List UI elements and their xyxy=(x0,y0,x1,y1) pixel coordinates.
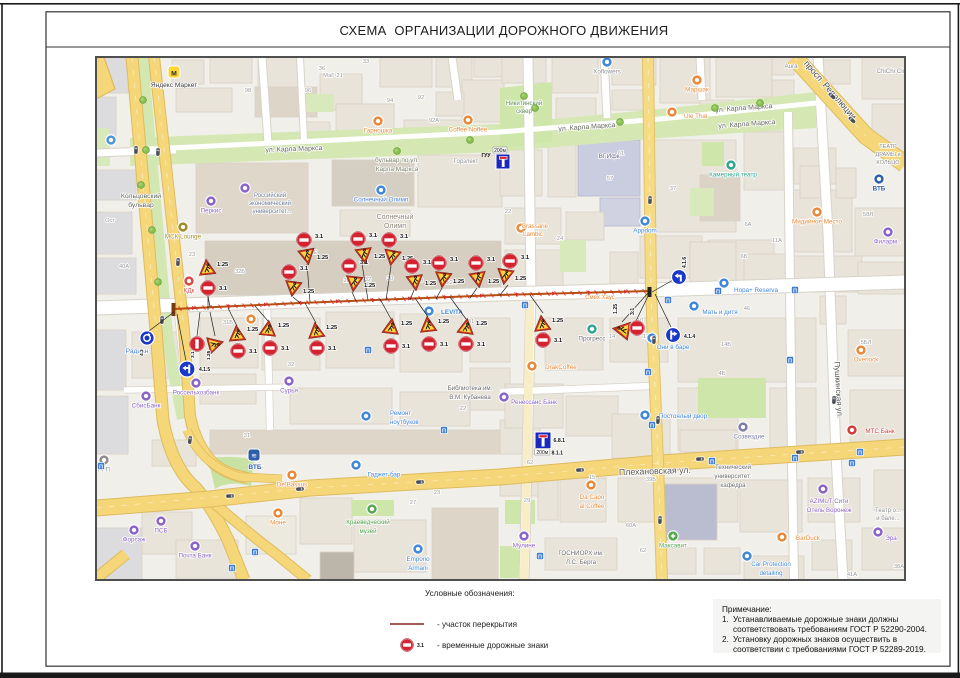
svg-text:Сурья: Сурья xyxy=(280,388,298,395)
svg-text:П: П xyxy=(366,348,370,354)
svg-text:3.1: 3.1 xyxy=(450,257,459,263)
svg-text:Смех Хаус: Смех Хаус xyxy=(585,295,615,301)
svg-text:Условные обозначения:: Условные обозначения: xyxy=(425,589,515,598)
svg-text:2.: 2. xyxy=(722,635,729,644)
svg-text:3.1: 3.1 xyxy=(477,342,486,348)
svg-text:1.25: 1.25 xyxy=(453,279,465,285)
svg-text:14: 14 xyxy=(609,334,616,340)
svg-text:Coffee Noffee: Coffee Noffee xyxy=(449,127,488,134)
svg-text:1.25: 1.25 xyxy=(613,304,619,314)
svg-text:м: м xyxy=(171,69,177,78)
svg-text:Краеведческий: Краеведческий xyxy=(346,519,390,526)
svg-text:Почта Банк: Почта Банк xyxy=(178,553,211,560)
svg-text:3.1: 3.1 xyxy=(369,233,378,239)
svg-text:- участок перекрытия: - участок перекрытия xyxy=(437,620,517,629)
svg-text:П: П xyxy=(666,298,670,304)
svg-text:Яндекс Маркет: Яндекс Маркет xyxy=(151,82,197,89)
svg-text:Театр о...: Театр о... xyxy=(875,508,901,514)
svg-text:П: П xyxy=(230,566,234,572)
svg-text:60А: 60А xyxy=(626,523,636,529)
svg-text:62: 62 xyxy=(527,460,533,466)
svg-text:бульвар: бульвар xyxy=(128,201,154,209)
svg-text:университет:: университет: xyxy=(714,473,751,480)
svg-text:4.1.4: 4.1.4 xyxy=(684,334,695,340)
svg-text:П: П xyxy=(788,358,792,364)
svg-text:соответствовать требованиям ГО: соответствовать требованиям ГОСТ Р 52290… xyxy=(733,625,927,634)
svg-text:38А: 38А xyxy=(894,564,904,570)
svg-text:1.25: 1.25 xyxy=(515,276,527,282)
svg-text:3.1: 3.1 xyxy=(281,346,290,352)
svg-text:32Б: 32Б xyxy=(235,269,245,275)
svg-text:Библиотека им.: Библиотека им. xyxy=(448,385,493,392)
svg-text:Постоялый двор: Постоялый двор xyxy=(659,412,708,420)
svg-text:1.25: 1.25 xyxy=(206,350,212,360)
svg-text:4.1.6: 4.1.6 xyxy=(682,257,688,268)
svg-text:ГОСНИОРХ им.: ГОСНИОРХ им. xyxy=(558,550,603,557)
svg-text:П: П xyxy=(646,370,650,376)
svg-text:Ренессанс Банк: Ренессанс Банк xyxy=(511,399,557,406)
svg-text:1.: 1. xyxy=(722,615,729,624)
svg-text:11А: 11А xyxy=(772,238,782,244)
svg-text:кафедра: кафедра xyxy=(720,482,746,489)
svg-text:музей: музей xyxy=(359,528,377,535)
svg-text:П: П xyxy=(858,450,862,456)
svg-text:3.1: 3.1 xyxy=(554,338,563,344)
svg-text:Олимп: Олимп xyxy=(384,223,406,230)
svg-text:22: 22 xyxy=(460,406,466,412)
svg-text:Радиан: Радиан xyxy=(126,348,149,355)
svg-text:40А: 40А xyxy=(119,264,129,270)
svg-text:Da Capo: Da Capo xyxy=(580,494,605,501)
svg-text:92А: 92А xyxy=(429,118,439,124)
svg-text:4.1.5: 4.1.5 xyxy=(199,367,210,373)
svg-text:1.25: 1.25 xyxy=(247,327,259,333)
svg-text:Филарм...: Филарм... xyxy=(874,239,903,246)
svg-text:Карла Маркса: Карла Маркса xyxy=(376,166,419,173)
svg-text:57: 57 xyxy=(607,176,613,182)
svg-text:университет...: университет... xyxy=(253,209,292,215)
svg-text:1.25: 1.25 xyxy=(364,283,376,289)
svg-text:Солнечный: Солнечный xyxy=(377,213,414,221)
svg-text:BarDuck: BarDuck xyxy=(796,535,821,542)
svg-text:3.1: 3.1 xyxy=(249,349,258,355)
svg-text:Гаджет бар: Гаджет бар xyxy=(368,471,401,479)
svg-text:Ост: Ост xyxy=(105,218,115,224)
svg-text:Нора+ Reserva: Нора+ Reserva xyxy=(734,287,778,294)
svg-text:Камерный театр: Камерный театр xyxy=(709,171,757,179)
svg-text:и бале...: и бале... xyxy=(876,516,900,522)
svg-text:Гарношка: Гарношка xyxy=(364,128,393,135)
svg-text:30: 30 xyxy=(387,276,393,282)
svg-text:1.25: 1.25 xyxy=(217,262,229,268)
svg-text:соответствии с требованиями ГО: соответствии с требованиями ГОСТ Р 52289… xyxy=(733,645,926,654)
svg-text:Прогресс: Прогресс xyxy=(578,336,605,343)
svg-text:КОЛЬЦО: КОЛЬЦО xyxy=(876,160,900,166)
svg-text:Ремонт: Ремонт xyxy=(390,410,411,417)
svg-text:ПСБ: ПСБ xyxy=(154,528,167,535)
svg-text:Кольцовский: Кольцовский xyxy=(121,192,161,200)
svg-text:1.25: 1.25 xyxy=(317,255,329,261)
svg-text:КДк: КДк xyxy=(184,288,195,295)
svg-text:1.25: 1.25 xyxy=(476,321,488,327)
svg-text:СХЕМА ОРГАНИЗАЦИИ ДОРОЖНОГО Д: СХЕМА ОРГАНИЗАЦИИ ДОРОЖНОГО ДВИЖЕНИЯ xyxy=(340,23,669,38)
svg-text:36: 36 xyxy=(319,66,325,72)
svg-text:Перкис: Перкис xyxy=(201,208,222,215)
svg-text:98: 98 xyxy=(245,88,251,94)
svg-text:4.3: 4.3 xyxy=(139,349,145,356)
svg-text:ДРАМЫ и: ДРАМЫ и xyxy=(875,152,900,158)
svg-text:3.1: 3.1 xyxy=(402,344,411,350)
svg-text:П: П xyxy=(523,303,527,309)
svg-text:46: 46 xyxy=(744,306,750,312)
svg-text:3.1: 3.1 xyxy=(417,643,424,649)
svg-text:В.М. Кубанева: В.М. Кубанева xyxy=(449,394,491,401)
svg-text:ВГИфк: ВГИфк xyxy=(598,153,619,160)
svg-text:Максавит: Максавит xyxy=(659,543,687,550)
svg-text:3.1: 3.1 xyxy=(328,346,337,352)
svg-text:AZIMUT Сити: AZIMUT Сити xyxy=(810,498,849,505)
svg-text:39Б: 39Б xyxy=(646,477,656,483)
svg-text:экономический: экономический xyxy=(249,200,291,207)
svg-text:П: П xyxy=(442,428,446,434)
svg-text:3.1: 3.1 xyxy=(315,234,324,240)
svg-text:Отель Воронеж: Отель Воронеж xyxy=(807,507,853,514)
svg-text:сквер: сквер xyxy=(516,108,532,115)
svg-text:detailing: detailing xyxy=(759,570,783,577)
svg-text:ВТБ: ВТБ xyxy=(248,464,262,471)
svg-text:33: 33 xyxy=(363,59,369,65)
svg-text:Aura: Aura xyxy=(784,63,798,70)
svg-text:58Л: 58Л xyxy=(863,212,873,218)
svg-text:П: П xyxy=(710,459,714,465)
svg-text:Мать и дитя: Мать и дитя xyxy=(702,309,737,316)
svg-text:6Б: 6Б xyxy=(740,254,747,260)
svg-text:3.1: 3.1 xyxy=(630,308,636,315)
svg-text:62: 62 xyxy=(640,548,646,554)
svg-text:24: 24 xyxy=(557,236,564,242)
svg-text:DrakCoffee: DrakCoffee xyxy=(545,364,577,371)
svg-text:Armani: Armani xyxy=(408,565,428,572)
svg-text:23: 23 xyxy=(434,490,440,496)
svg-text:3.1: 3.1 xyxy=(300,266,309,272)
svg-text:3.1: 3.1 xyxy=(219,286,228,292)
svg-text:СбисБанк: СбисБанк xyxy=(132,402,161,410)
svg-text:3.1: 3.1 xyxy=(521,255,530,261)
svg-text:Overlock: Overlock xyxy=(854,357,880,364)
svg-text:Car Protection: Car Protection xyxy=(751,561,791,568)
svg-text:27: 27 xyxy=(410,500,416,506)
svg-text:≋: ≋ xyxy=(251,453,257,460)
svg-text:4Б: 4Б xyxy=(718,371,725,377)
svg-text:Установку дорожных знаков осущ: Установку дорожных знаков осуществить в xyxy=(733,635,897,644)
svg-text:31: 31 xyxy=(244,433,250,439)
svg-text:П: П xyxy=(716,289,720,295)
svg-text:6А: 6А xyxy=(744,222,751,228)
svg-text:Устанавливаемые дорожные знаки: Устанавливаемые дорожные знаки должны xyxy=(733,615,898,624)
svg-text:1.25: 1.25 xyxy=(303,289,315,295)
svg-text:Российский: Российский xyxy=(254,192,286,199)
svg-text:Ule Thai: Ule Thai xyxy=(684,113,707,120)
svg-text:96: 96 xyxy=(305,88,311,94)
svg-text:3.1: 3.1 xyxy=(487,257,496,263)
svg-text:1.25: 1.25 xyxy=(552,318,564,324)
svg-text:П: П xyxy=(99,464,103,470)
svg-text:П: П xyxy=(850,461,854,467)
svg-text:1.25: 1.25 xyxy=(425,281,437,287)
svg-text:Xoflowers: Xoflowers xyxy=(593,69,621,76)
svg-text:200м: 200м xyxy=(536,450,548,456)
svg-text:LEVITA: LEVITA xyxy=(441,309,463,316)
svg-text:Созвездие: Созвездие xyxy=(734,434,765,441)
svg-text:Мулине: Мулине xyxy=(513,543,536,550)
svg-text:П: П xyxy=(253,550,257,556)
svg-text:ноутбуков: ноутбуков xyxy=(390,419,419,426)
svg-text:200м: 200м xyxy=(494,148,506,154)
svg-text:бульвар по ул.: бульвар по ул. xyxy=(375,156,419,164)
svg-text:3.1: 3.1 xyxy=(440,342,449,348)
svg-text:МТС Банк: МТС Банк xyxy=(865,428,895,435)
svg-text:1.25: 1.25 xyxy=(488,279,500,285)
svg-text:Солнечный Олимп: Солнечный Олимп xyxy=(354,196,409,204)
svg-text:Горзлект: Горзлект xyxy=(454,159,479,165)
svg-text:37: 37 xyxy=(670,186,676,192)
svg-text:Emporio: Emporio xyxy=(406,556,430,563)
svg-text:Л.С. Берга: Л.С. Берга xyxy=(566,559,597,566)
svg-text:Эра: Эра xyxy=(885,535,897,542)
svg-text:П: П xyxy=(538,554,542,560)
svg-text:Моне: Моне xyxy=(270,520,286,527)
svg-text:- временные дорожные знаки: - временные дорожные знаки xyxy=(437,641,548,650)
svg-text:1.25: 1.25 xyxy=(326,325,338,331)
svg-text:П: П xyxy=(793,456,797,462)
svg-text:41А: 41А xyxy=(847,572,857,578)
svg-text:3.1: 3.1 xyxy=(400,234,409,240)
svg-text:22: 22 xyxy=(505,209,511,215)
svg-text:8.1.1: 8.1.1 xyxy=(552,450,564,456)
svg-text:Мидийное Место: Мидийное Место xyxy=(792,218,842,226)
svg-text:29: 29 xyxy=(524,498,530,504)
svg-text:Маршак: Маршак xyxy=(685,87,709,94)
svg-text:Lambic: Lambic xyxy=(523,231,543,238)
svg-text:П: П xyxy=(793,288,797,294)
svg-text:Примечание:: Примечание: xyxy=(722,605,772,614)
svg-text:94: 94 xyxy=(387,98,394,104)
svg-text:1.25: 1.25 xyxy=(401,321,413,327)
svg-text:ВТБ: ВТБ xyxy=(873,186,886,193)
svg-text:1.25: 1.25 xyxy=(278,323,290,329)
svg-text:Форсаж: Форсаж xyxy=(123,537,146,544)
svg-text:ТЕАТР: ТЕАТР xyxy=(879,144,897,150)
svg-text:23: 23 xyxy=(189,252,195,258)
svg-text:6.8.1: 6.8.1 xyxy=(554,438,566,444)
svg-text:3.1: 3.1 xyxy=(190,351,196,358)
svg-text:1.25: 1.25 xyxy=(374,254,386,260)
svg-text:1.25: 1.25 xyxy=(438,319,450,325)
svg-text:32: 32 xyxy=(288,362,294,368)
svg-text:31Б: 31Б xyxy=(223,320,233,326)
svg-text:Brassarie: Brassarie xyxy=(522,223,549,230)
svg-text:Appdom: Appdom xyxy=(633,228,656,235)
svg-text:МСК Lounge: МСК Lounge xyxy=(165,234,202,241)
svg-text:3.1: 3.1 xyxy=(423,260,432,266)
svg-text:Россельхозбанк: Россельхозбанк xyxy=(173,389,220,397)
svg-text:Они в баре: Они в баре xyxy=(657,343,690,351)
svg-text:МаГ-21: МаГ-21 xyxy=(323,73,343,79)
svg-text:ГУУ: ГУУ xyxy=(481,153,491,159)
svg-text:Технический: Технический xyxy=(715,464,752,471)
svg-text:П: П xyxy=(650,423,654,429)
svg-text:14Б: 14Б xyxy=(721,342,731,348)
svg-text:92: 92 xyxy=(418,95,424,101)
svg-text:al Coffee: al Coffee xyxy=(580,503,605,510)
